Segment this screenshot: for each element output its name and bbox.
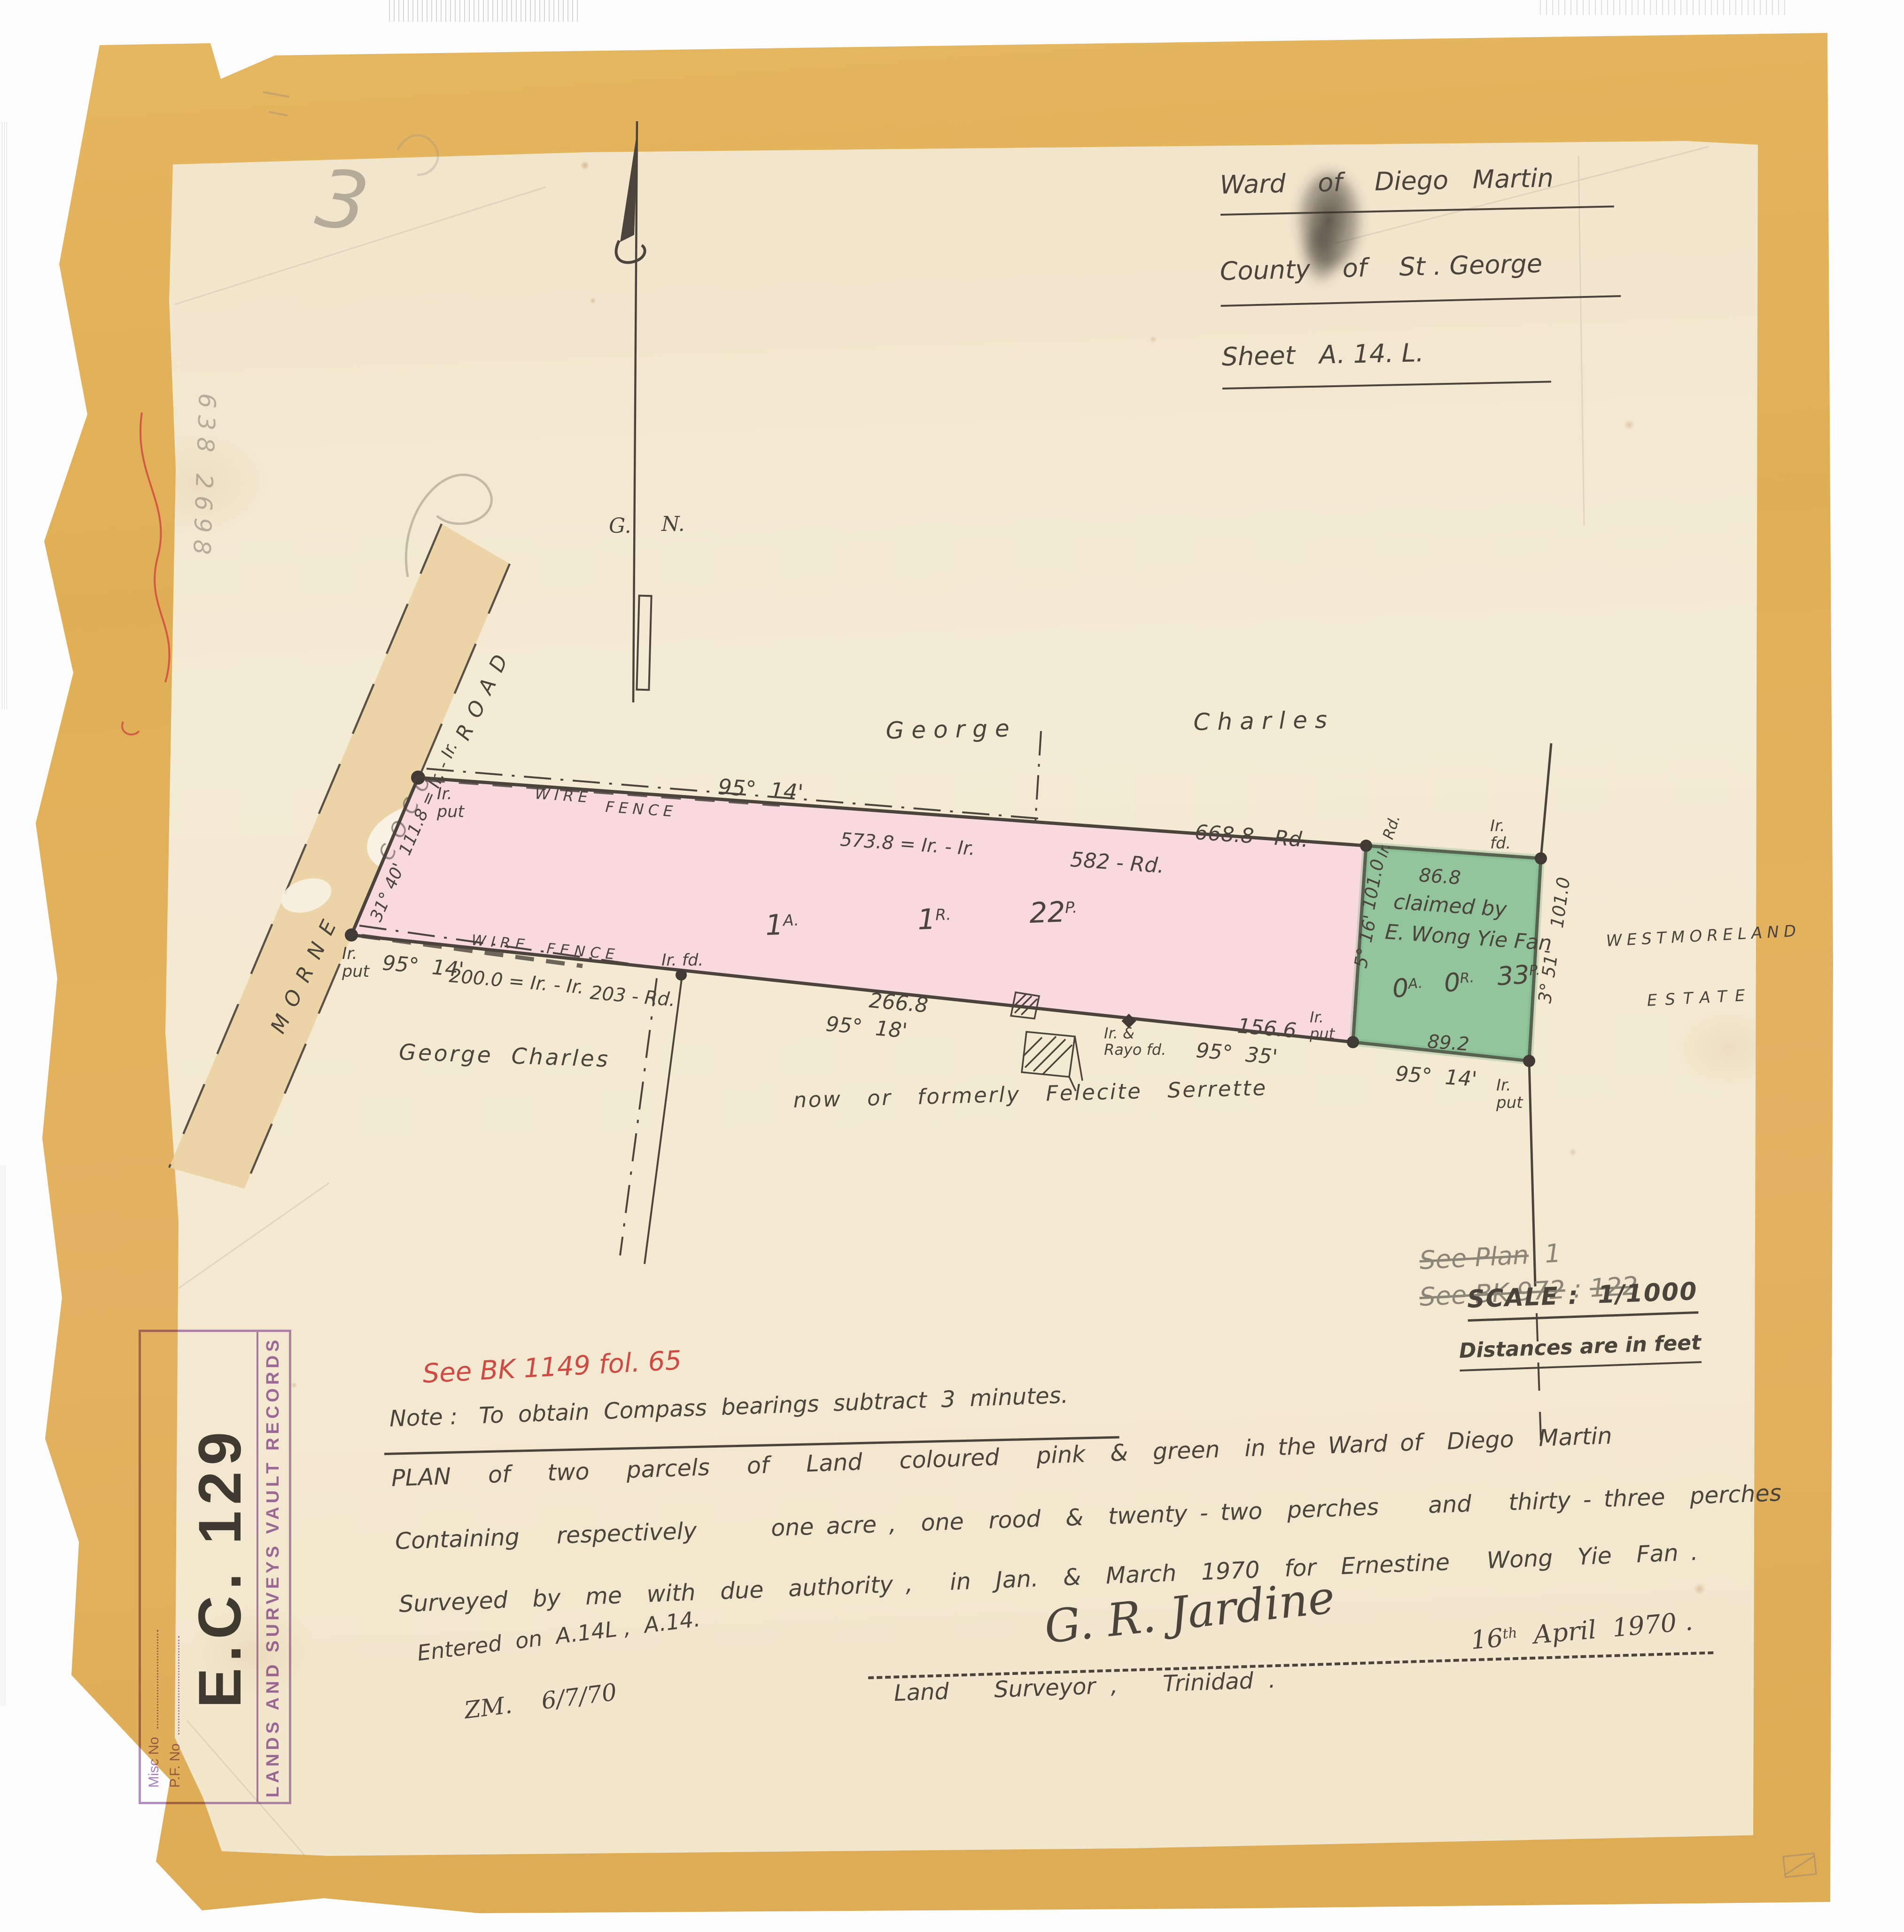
title-county: County of St . George [1220, 247, 1621, 307]
meas-wire-top: WIRE [535, 786, 593, 806]
neighbor-north-1: George [886, 716, 1017, 743]
neighbor-north-2: Charles [1193, 707, 1335, 735]
date-day: 16 [1469, 1623, 1504, 1655]
green-area-acres: 0A. [1391, 973, 1424, 1003]
pencil-ref-number: 638 2698 [189, 393, 220, 562]
scanner-streaks [2, 122, 8, 709]
pink-area-roods: 1R. [917, 904, 952, 935]
title-sheet: Sheet A. 14. L. [1221, 335, 1551, 390]
north-label-g: G. [609, 515, 631, 538]
green-bearing-bot: 95° 14' [1395, 1063, 1478, 1091]
scanned-survey-plan: Ward of Diego Martin County of St . Geor… [0, 0, 1904, 1932]
green-area-roods: 0R. [1443, 968, 1475, 997]
stamp-pf-label: P.F. No [167, 1744, 183, 1788]
mark-irput-se: Ir. put [1496, 1077, 1523, 1111]
mark-irput-sw: Ir. put [342, 945, 369, 981]
stamp-misc-row: Misc No [141, 1332, 162, 1802]
meas-dist-bot-4: 156.6 [1236, 1015, 1298, 1042]
green-dist-top: 86.8 [1418, 865, 1461, 888]
mark-irfd-ne: Ir. fd. [1490, 818, 1511, 852]
mark-irput-c: Ir. put [1310, 1009, 1335, 1042]
stamp-misc-label: Misc No [146, 1737, 162, 1788]
pink-area-perches: 22P. [1029, 896, 1078, 928]
mark-rayo: Ir. & Rayo fd. [1104, 1025, 1166, 1058]
north-label-n: N. [661, 513, 685, 536]
stamp-pf-row: P.F. No [162, 1332, 183, 1802]
mark-irfd-bot: Ir. fd. [661, 952, 703, 970]
vault-records-stamp: Misc No P.F. No E.C. 129 LANDS AND SURVE… [139, 1330, 291, 1804]
green-dist-bot: 89.2 [1427, 1032, 1470, 1055]
stamp-organization: LANDS AND SURVEYS VAULT RECORDS [256, 1332, 289, 1802]
stamp-code: E.C. 129 [183, 1332, 256, 1802]
meas-dist-bot-3: 266.8 [868, 989, 929, 1017]
pink-area-acres: 1A. [765, 909, 800, 941]
title-ward: Ward of Diego Martin [1220, 162, 1614, 216]
date-ordinal: th [1502, 1625, 1518, 1643]
scanner-streaks [1540, 0, 1789, 15]
scanner-streaks [1, 1165, 7, 1706]
scanner-streaks [389, 0, 582, 22]
green-area-perches: 33P. [1496, 960, 1541, 991]
